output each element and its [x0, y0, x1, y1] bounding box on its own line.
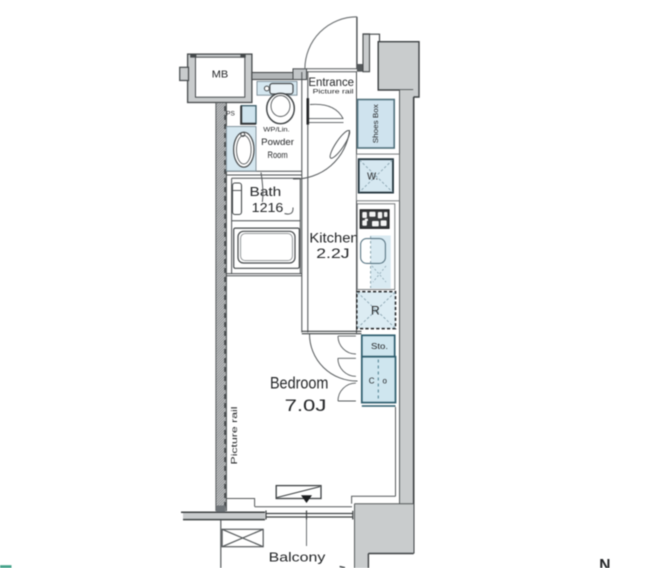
svg-text:Bedroom: Bedroom [270, 373, 329, 392]
svg-text:2.2J: 2.2J [316, 245, 349, 261]
svg-text:Kitchen: Kitchen [309, 230, 358, 246]
svg-text:MB: MB [212, 70, 229, 81]
svg-text:Powder: Powder [261, 137, 294, 148]
svg-text:o: o [382, 376, 387, 385]
svg-text:C: C [369, 376, 375, 385]
svg-text:Sto.: Sto. [371, 342, 388, 351]
svg-text:Balcony: Balcony [269, 550, 326, 565]
svg-text:Room: Room [268, 150, 288, 161]
svg-text:WP/Lin.: WP/Lin. [263, 126, 290, 133]
svg-text:Shoes Box: Shoes Box [373, 104, 380, 144]
svg-text:PS: PS [226, 111, 235, 118]
svg-text:Entrance: Entrance [308, 77, 354, 89]
svg-text:R: R [371, 303, 380, 317]
svg-text:W.: W. [367, 171, 378, 182]
svg-text:7.0J: 7.0J [285, 396, 327, 415]
svg-text:1216: 1216 [252, 201, 284, 215]
svg-text:Picture rail: Picture rail [313, 89, 354, 95]
svg-text:Picture rail: Picture rail [230, 406, 239, 464]
svg-text:N: N [599, 557, 610, 568]
svg-text:Bath: Bath [250, 185, 282, 199]
